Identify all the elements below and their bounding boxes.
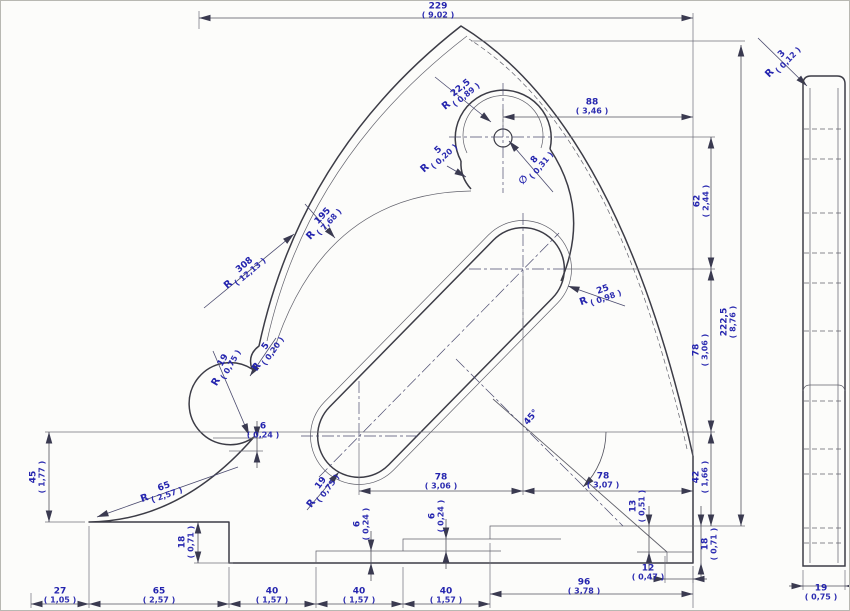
main-view-outline — [89, 26, 693, 563]
right-edge-inner-contour — [469, 39, 687, 449]
extension-lines — [31, 11, 845, 608]
leader-lines — [97, 38, 807, 517]
hole-centerlines — [449, 83, 566, 193]
rib-axis-45 — [456, 359, 623, 526]
boss-to-slot-edge — [550, 149, 574, 281]
drawing-canvas — [1, 1, 850, 611]
base-steps-contour — [316, 526, 693, 563]
side-view — [803, 76, 845, 566]
rim-contour-r195 — [273, 191, 471, 353]
slot-bottom-centerlines — [301, 381, 419, 443]
angle-dimension-arc — [583, 432, 606, 487]
side-step-contour — [803, 385, 845, 391]
part-outer-contour — [89, 26, 693, 563]
side-outer-contour — [803, 76, 845, 566]
drawing-sheet: 229( 9,02 )88( 3,46 )62( 2,44 )78( 3,06 … — [0, 0, 850, 611]
main-view-thin-contours — [267, 36, 693, 563]
slot-top-centerlines — [469, 213, 566, 331]
dimension-lines — [31, 18, 850, 604]
